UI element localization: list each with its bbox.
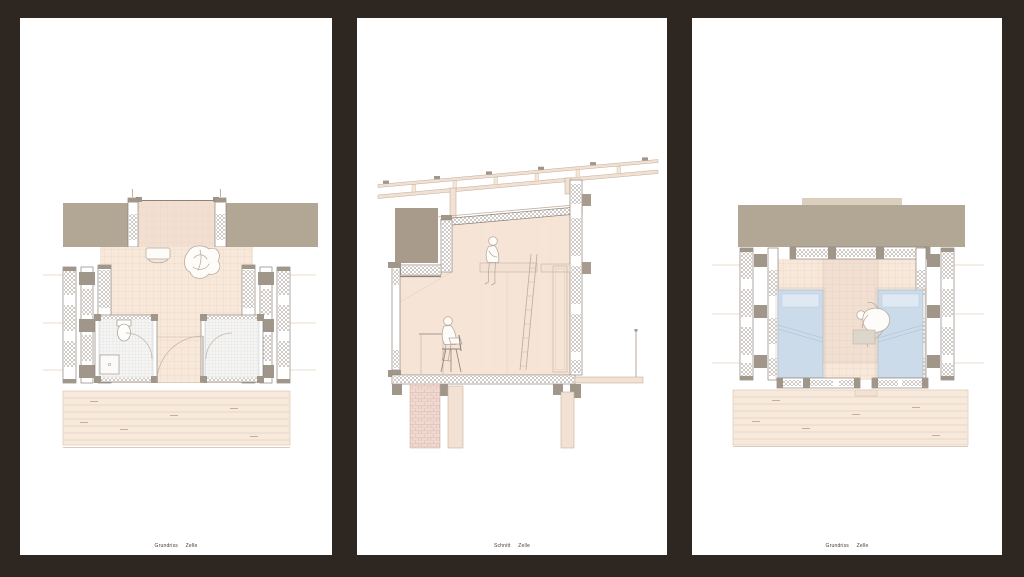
panel-ground-floor-plan: Grundriss Zelle [20,18,332,555]
background-wall [395,208,438,263]
left-wall-assembly [740,248,778,380]
stilt-post [561,392,574,448]
bathroom-left [94,314,158,383]
drawing-caption: Grundriss Zelle [692,543,1002,549]
clerestory-wall-band [441,220,452,272]
floor-slab [392,375,575,384]
caption-subject: Zelle [518,543,530,549]
annex-left-wall [388,262,401,377]
toilet [117,320,131,341]
caption-type: Schnitt [494,543,511,549]
drawing-caption: Schnitt Zelle [357,543,667,549]
foundation [392,384,581,448]
deck-section [575,329,643,383]
presentation-board: { "board": { "background_color": "#2E272… [0,0,1024,577]
sleeping-level-plan-drawing [692,18,1002,555]
bottom-wall-band [777,378,928,388]
roof-plan [738,198,965,247]
panel-cross-section: Schnitt Zelle [357,18,667,555]
board-background: Grundriss Zelle [0,0,1024,577]
drawing-caption: Grundriss Zelle [20,543,332,549]
brick-pier [410,384,440,448]
alcove-bay [128,189,226,247]
roof-structure [378,157,658,198]
right-wall-section [570,180,591,375]
caption-subject: Zelle [857,543,869,549]
shower-tray [100,355,119,374]
top-wall-band [790,247,930,259]
side-table [853,330,875,344]
bed-right [876,288,925,379]
annex-roof-band [395,264,441,277]
panel-sleeping-level-plan: Grundriss Zelle [692,18,1002,555]
caption-subject: Zelle [186,543,198,549]
bathroom-right [200,314,264,383]
ground-floor-plan-drawing [20,18,332,555]
stilt-post [448,386,463,448]
deck-plan [733,390,968,447]
caption-type: Grundriss [155,543,178,549]
cross-section-drawing [357,18,667,555]
caption-type: Grundriss [826,543,849,549]
deck-plan [63,391,290,448]
bed-left [776,288,825,379]
